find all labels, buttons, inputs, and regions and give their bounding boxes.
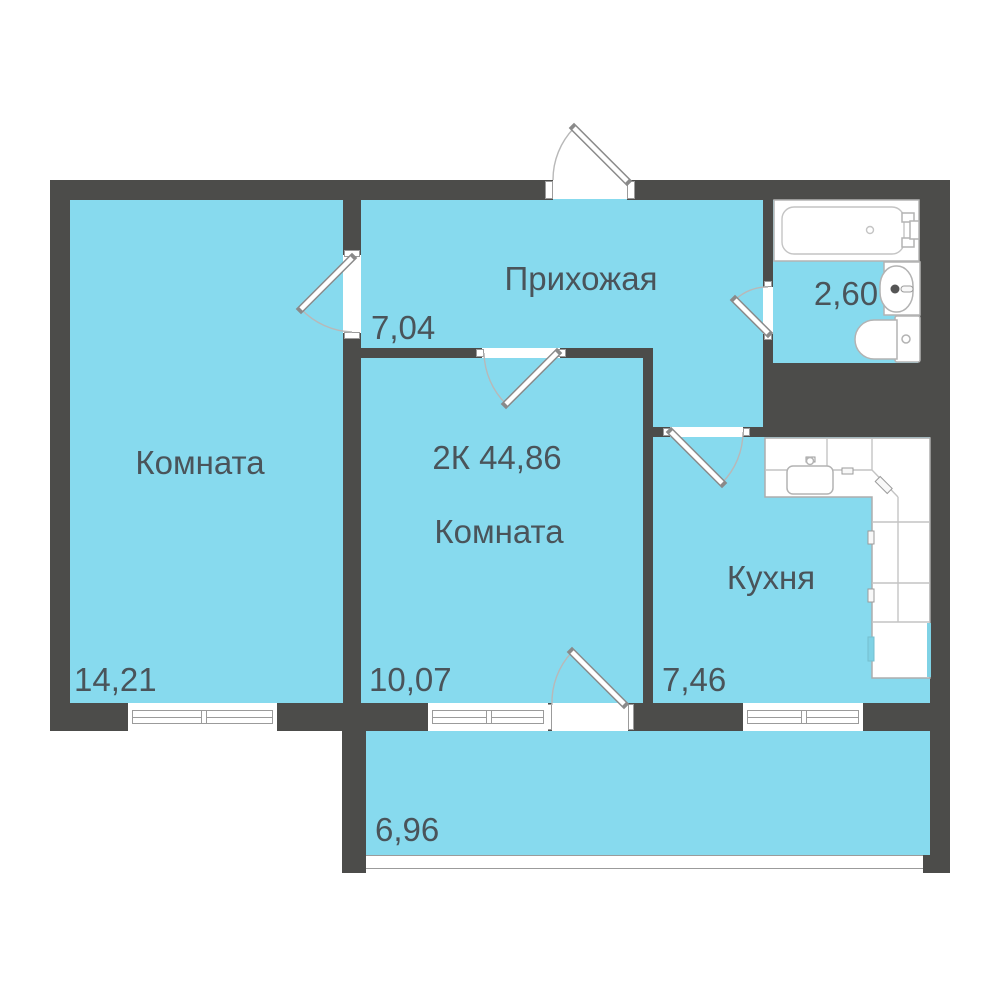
label-hallway-name: Прихожая bbox=[505, 262, 658, 295]
label-living1-name: Комната bbox=[135, 446, 264, 479]
window-living2 bbox=[428, 703, 548, 731]
wall-bathroom-left-upper bbox=[763, 199, 773, 287]
wall-living2-kitchen bbox=[643, 358, 653, 703]
label-apartment-title: 2К 44,86 bbox=[432, 441, 561, 474]
wall-top-right bbox=[627, 180, 950, 200]
label-bathroom-area: 2,60 bbox=[814, 277, 878, 310]
entrance-jamb-left bbox=[545, 181, 553, 199]
label-living2-area: 10,07 bbox=[369, 663, 452, 696]
wall-left bbox=[50, 180, 70, 731]
floor-balcony bbox=[366, 731, 930, 855]
living1-jamb-bottom bbox=[344, 332, 360, 339]
wall-hallway-living2-left bbox=[343, 348, 482, 358]
window-kitchen bbox=[743, 703, 863, 731]
label-kitchen-area: 7,46 bbox=[662, 663, 726, 696]
wall-right-bathroom-filler bbox=[918, 199, 950, 437]
living1-jamb-top bbox=[344, 250, 360, 257]
wall-top-left bbox=[50, 180, 553, 200]
label-balcony-area: 6,96 bbox=[375, 813, 439, 846]
wall-living1-upper bbox=[343, 199, 361, 255]
entrance-door bbox=[553, 128, 627, 181]
label-living2-name: Комната bbox=[434, 515, 563, 548]
living2-jamb-right bbox=[558, 349, 566, 357]
label-hallway-area: 7,04 bbox=[371, 311, 435, 344]
floor-plan: Комната 14,21 Прихожая 7,04 2,60 2К 44,8… bbox=[0, 0, 1000, 1000]
kitchen-jamb-left bbox=[663, 428, 670, 436]
window-living2-frame bbox=[432, 710, 544, 724]
floor-hallway-corridor bbox=[653, 348, 763, 427]
entrance-jamb-right bbox=[627, 181, 635, 199]
wall-living1-lower bbox=[343, 333, 361, 703]
balcony-jamb-right bbox=[628, 704, 634, 730]
window-living1-frame bbox=[132, 710, 273, 724]
kitchen-jamb-right bbox=[743, 428, 750, 436]
label-living1-area: 14,21 bbox=[74, 663, 157, 696]
bathroom-jamb-top bbox=[764, 281, 772, 287]
wall-bottom-5 bbox=[863, 703, 950, 731]
bathroom-jamb-bottom bbox=[764, 334, 772, 340]
wall-bottom-1 bbox=[50, 703, 128, 731]
window-living1 bbox=[128, 703, 277, 731]
balcony-glazing bbox=[366, 855, 923, 869]
wall-bottom-4 bbox=[628, 703, 743, 731]
window-kitchen-frame bbox=[747, 710, 859, 724]
wall-bathroom-kitchen-band bbox=[763, 363, 918, 437]
wall-balcony-right-block bbox=[923, 855, 950, 873]
living2-jamb-left bbox=[476, 349, 484, 357]
wall-hallway-living2-right bbox=[560, 348, 653, 358]
label-kitchen-name: Кухня bbox=[727, 561, 815, 594]
wall-balcony-left bbox=[342, 703, 366, 873]
